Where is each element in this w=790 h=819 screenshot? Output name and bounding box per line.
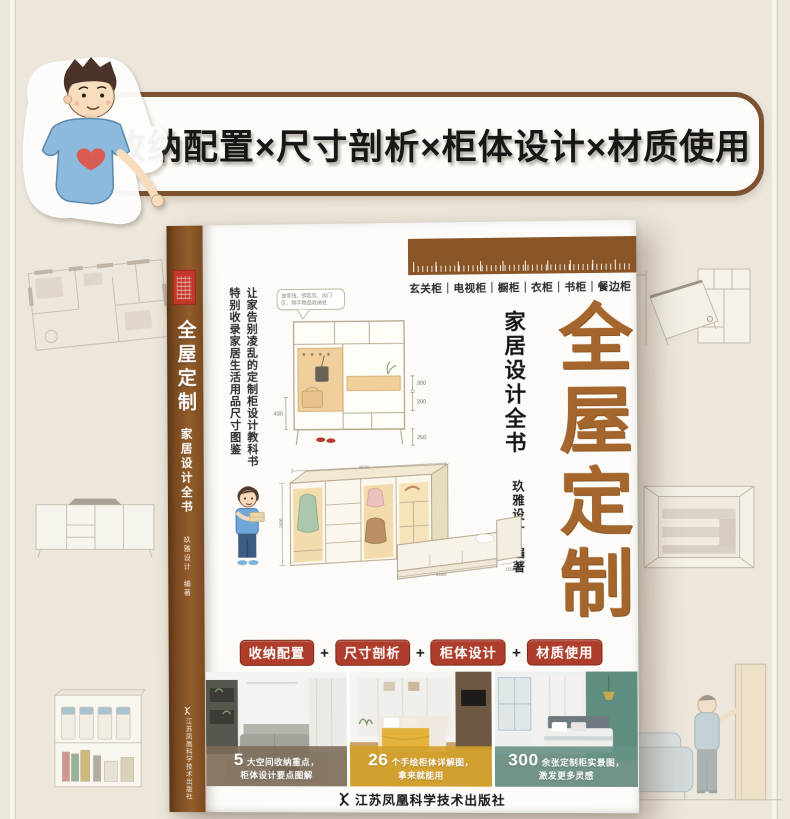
product-image: 收纳配置×尺寸剖析×柜体设计×材质使用 全屋定制 家居设计全书 玖雅设计 编著: [0, 0, 790, 819]
entry-cabinet-diagram: 放零钱、钥匙包、出门 区，随手物品收纳处: [273, 285, 429, 457]
bubble-note-line2: 区，随手物品收纳处: [281, 299, 327, 307]
dim-300: 300: [417, 381, 426, 387]
book-cover: 玄关柜｜电视柜｜橱柜｜衣柜｜书柜｜餐边柜 全屋定制 家居设计全书 玖雅设计 编著…: [202, 220, 639, 814]
spine-author: 玖雅设计 编著: [181, 536, 191, 598]
spine-publisher-name: 江苏凤凰科学技术出版社: [182, 718, 192, 801]
headline-text: 收纳配置×尺寸剖析×柜体设计×材质使用: [111, 119, 751, 170]
tv-cabinet-sketch: [638, 480, 760, 574]
photo-bedroom-green: 300 余张定制柜实景图， 激发更多灵感: [494, 672, 638, 787]
cover-taglines: 让家告别凌乱的定制柜设计教科书 特别收录家居生活用品尺寸图鉴: [225, 287, 260, 468]
pantry-shelf-sketch: [42, 686, 154, 796]
spine-subtitle: 家居设计全书: [178, 428, 194, 515]
tagline-2: 特别收录家居生活用品尺寸图鉴: [225, 287, 243, 467]
stat-number-3: 300: [508, 751, 539, 768]
badge-dimensions: 尺寸剖析: [335, 640, 410, 666]
cover-header-bar: [408, 236, 636, 275]
publisher-name: 江苏凤凰科学技术出版社: [355, 789, 506, 809]
stat-text-2a: 个手绘柜体详解图，: [391, 756, 473, 768]
feature-badges: 收纳配置 + 尺寸剖析 + 柜体设计 + 材质使用: [205, 639, 639, 666]
stat-overlay-3: 300 余张定制柜实景图， 激发更多灵感: [495, 746, 638, 787]
wardrobe-bed-diagram: 2670 2400 2180 1500: [274, 462, 530, 582]
book: 全屋定制 家居设计全书 玖雅设计 编著 江苏凤凰科学技术出版社 玄关柜｜电视柜｜…: [166, 220, 639, 814]
spine-publisher: 江苏凤凰科学技术出版社: [182, 705, 192, 800]
stat-text-2b: 拿来就能用: [398, 769, 444, 781]
ruler-ticks: [413, 259, 631, 272]
mascot-man-icon: [16, 54, 170, 226]
stat-number-1: 5: [234, 751, 244, 768]
photo-bedroom-yellow: 26 个手绘柜体详解图， 拿来就能用: [350, 672, 492, 787]
cabinet-categories: 玄关柜｜电视柜｜橱柜｜衣柜｜书柜｜餐边柜: [409, 279, 631, 297]
spine-title: 全屋定制: [171, 320, 199, 416]
spine-author-role: 编著: [181, 580, 191, 598]
left-page-edge-line: [10, 0, 14, 819]
cover-title: 全屋定制: [551, 299, 626, 627]
spine-brand-logo: [173, 270, 196, 305]
plus-sign: +: [320, 644, 329, 661]
dim-wardrobe-width: 2670: [359, 465, 370, 470]
photo-strip: 5 大空间收纳重点， 柜体设计要点图解: [206, 672, 638, 787]
murphy-bed-sketch: [630, 260, 758, 354]
photo-living-room: 5 大空间收纳重点， 柜体设计要点图解: [206, 672, 347, 787]
badge-storage: 收纳配置: [240, 640, 315, 666]
plus-sign: +: [512, 644, 521, 661]
stat-overlay-2: 26 个手绘柜体详解图， 拿来就能用: [350, 746, 492, 786]
kitchen-counter-sketch: [30, 486, 160, 562]
phoenix-logo-icon: [183, 705, 191, 714]
stat-number-2: 26: [368, 751, 388, 768]
badge-materials: 材质使用: [527, 639, 603, 665]
stat-text-1a: 大空间收纳重点，: [247, 756, 319, 768]
dim-200: 200: [417, 399, 426, 405]
dim-250: 250: [417, 435, 426, 441]
stat-text-3a: 余张定制柜实景图，: [542, 756, 625, 768]
book-spine: 全屋定制 家居设计全书 玖雅设计 编著 江苏凤凰科学技术出版社: [166, 226, 205, 813]
stat-text-3b: 激发更多灵感: [539, 770, 594, 782]
dim-bed-depth: 1500: [505, 567, 516, 572]
cover-subtitle: 家居设计全书: [498, 310, 529, 456]
person-measuring-cabinet-sketch: [622, 648, 786, 818]
phoenix-logo-icon: [337, 791, 350, 806]
dim-430: 430: [274, 412, 283, 418]
stat-text-1b: 柜体设计要点图解: [240, 769, 312, 781]
stat-overlay-1: 5 大空间收纳重点， 柜体设计要点图解: [206, 746, 347, 786]
boy-carrying-box-icon: [226, 483, 267, 575]
dim-bed-width: 2180: [436, 572, 447, 577]
dim-wardrobe-height: 2400: [278, 518, 283, 529]
spine-author-name: 玖雅设计: [181, 536, 191, 572]
headline-banner: 收纳配置×尺寸剖析×柜体设计×材质使用: [98, 92, 764, 196]
tagline-1: 让家告别凌乱的定制柜设计教科书: [242, 287, 260, 468]
publisher-line: 江苏凤凰科学技术出版社: [205, 789, 639, 809]
floor-plan-sketch: [24, 253, 175, 359]
bubble-note-line1: 放零钱、钥匙包、出门: [281, 292, 332, 300]
badge-cabinet-design: 柜体设计: [431, 639, 506, 665]
plus-sign: +: [416, 644, 425, 661]
